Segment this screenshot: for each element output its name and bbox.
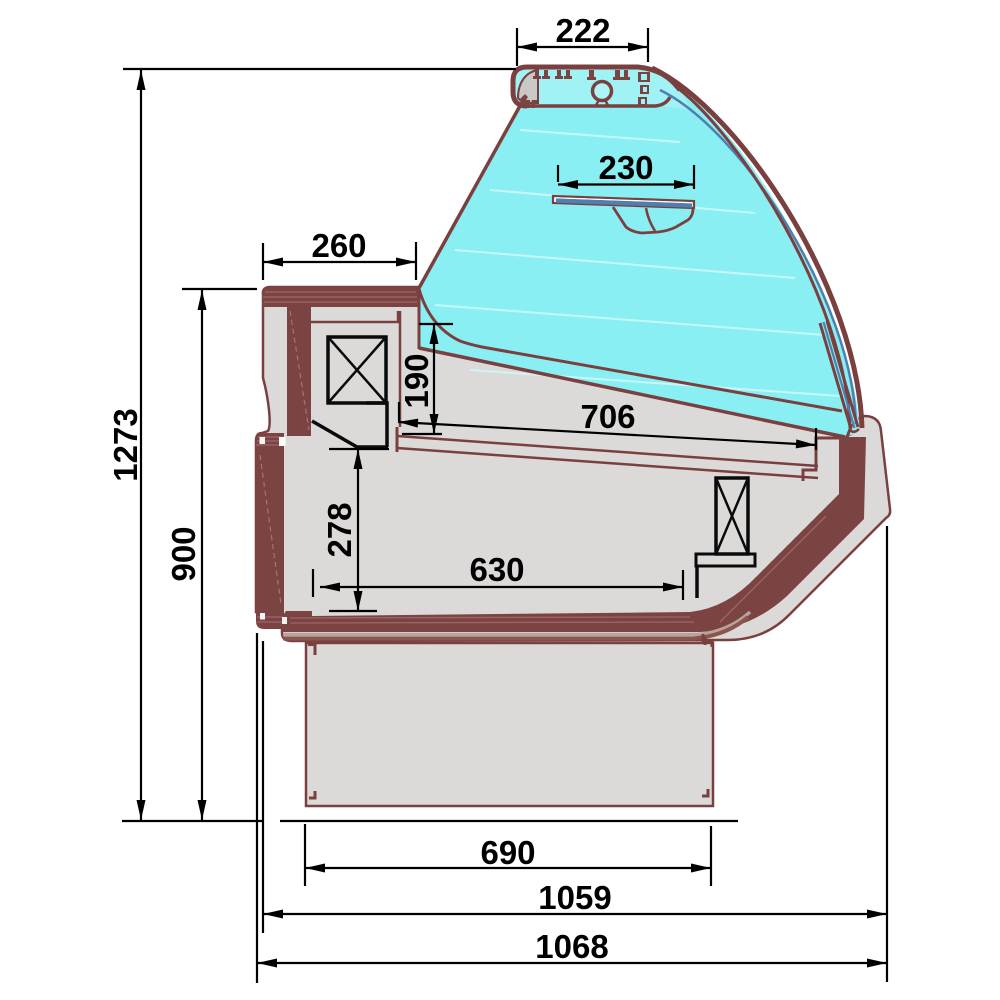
svg-text:690: 690: [480, 834, 535, 871]
svg-text:900: 900: [165, 526, 202, 581]
svg-text:706: 706: [580, 398, 635, 435]
svg-text:1273: 1273: [107, 408, 144, 481]
svg-text:1068: 1068: [535, 928, 608, 965]
svg-text:630: 630: [469, 551, 524, 588]
svg-text:230: 230: [598, 149, 653, 186]
svg-text:260: 260: [311, 227, 366, 264]
svg-text:278: 278: [321, 502, 358, 557]
svg-text:222: 222: [555, 12, 610, 49]
svg-text:190: 190: [398, 353, 435, 408]
svg-text:1059: 1059: [538, 879, 611, 916]
